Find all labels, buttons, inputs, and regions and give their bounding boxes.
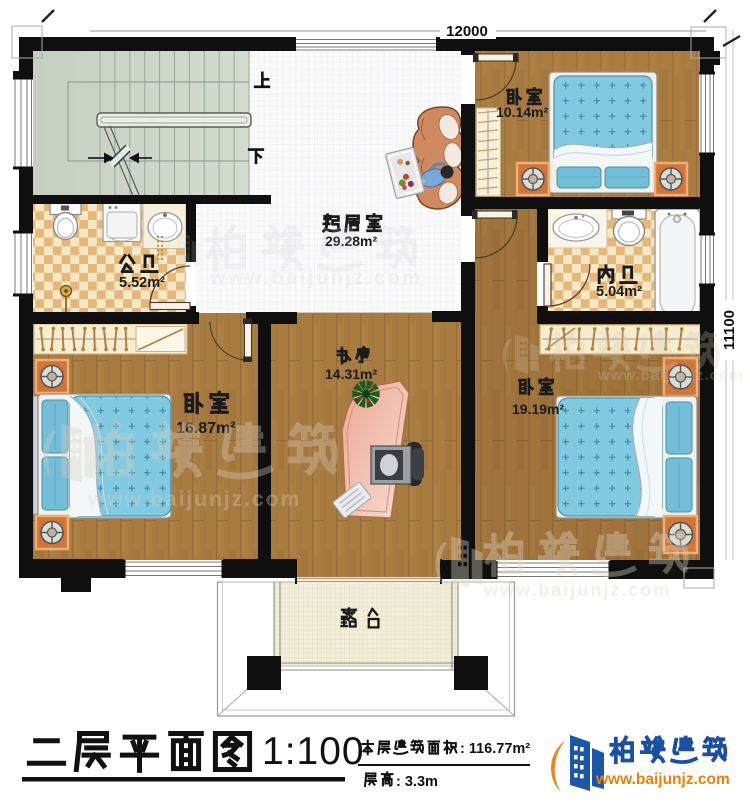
svg-text:14.31m²: 14.31m² <box>325 366 377 382</box>
svg-text:www.baijunjz.com: www.baijunjz.com <box>595 771 730 788</box>
svg-text:19.19m²: 19.19m² <box>512 401 564 417</box>
svg-text:5.52m²: 5.52m² <box>119 275 165 291</box>
svg-text:www.baijunjz.com: www.baijunjz.com <box>209 267 423 289</box>
svg-text:www.baijunjz.com: www.baijunjz.com <box>483 580 671 600</box>
svg-text:: 116.77m²: : 116.77m² <box>460 741 530 757</box>
svg-text:www.baijunjz.com: www.baijunjz.com <box>87 488 301 511</box>
svg-text:10.14m²: 10.14m² <box>496 104 548 120</box>
svg-text:: 3.3m: : 3.3m <box>396 774 438 790</box>
svg-text:5.04m²: 5.04m² <box>596 284 642 300</box>
svg-text:1:100: 1:100 <box>262 730 365 773</box>
svg-text:12000: 12000 <box>446 23 488 40</box>
svg-text:11100: 11100 <box>721 310 738 350</box>
svg-text:www.baijunjz.com: www.baijunjz.com <box>597 367 743 384</box>
